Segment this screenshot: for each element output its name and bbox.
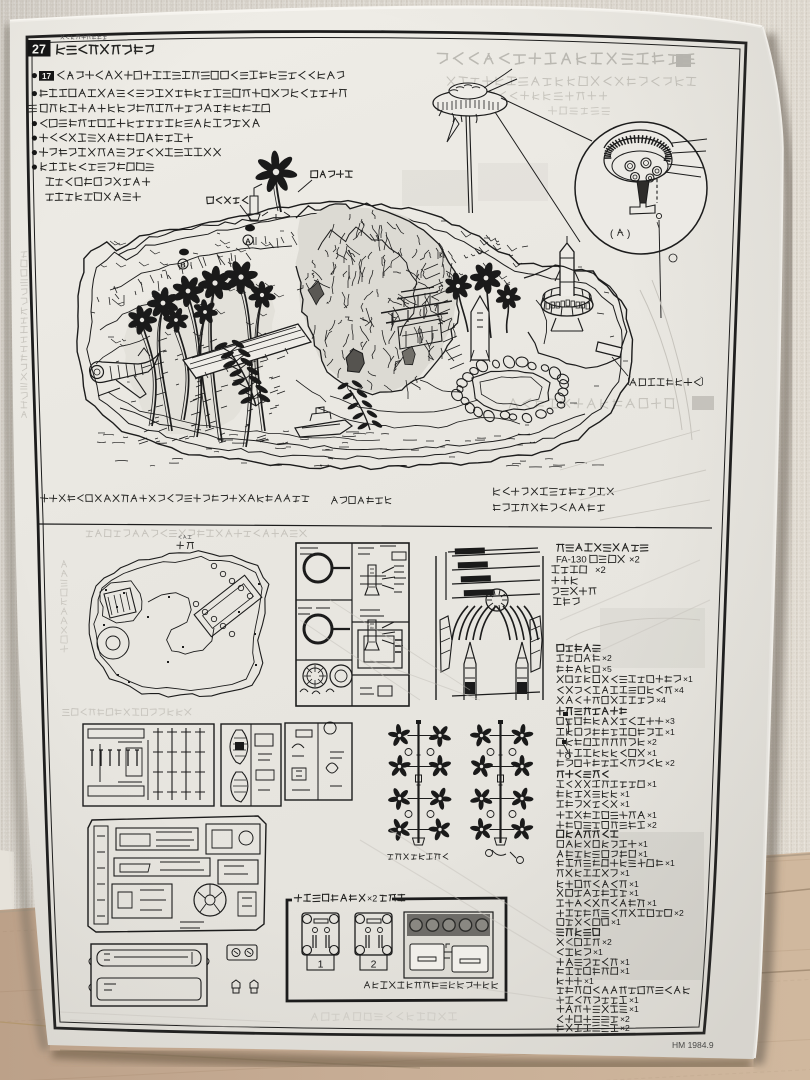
svg-text:×1: ×1 xyxy=(638,849,648,859)
svg-text:×2: ×2 xyxy=(595,565,606,576)
svg-text:×1: ×1 xyxy=(647,898,657,908)
svg-text:×4: ×4 xyxy=(656,695,666,705)
svg-text:×2: ×2 xyxy=(647,820,657,830)
svg-text:HM 1984.9: HM 1984.9 xyxy=(672,1040,714,1050)
svg-text:×1: ×1 xyxy=(593,947,603,957)
svg-text:×1: ×1 xyxy=(683,674,693,684)
svg-text:×1: ×1 xyxy=(584,976,594,986)
svg-text:×2: ×2 xyxy=(367,894,377,904)
svg-text:〔: 〔 xyxy=(621,376,631,388)
svg-text:×1: ×1 xyxy=(620,966,630,976)
svg-text:×1: ×1 xyxy=(638,839,648,849)
svg-text:×1: ×1 xyxy=(611,917,621,927)
svg-text:×3: ×3 xyxy=(665,716,675,726)
svg-text:1: 1 xyxy=(318,959,324,971)
svg-text:×5: ×5 xyxy=(602,664,612,674)
svg-text:×4: ×4 xyxy=(674,685,684,695)
svg-text:×1: ×1 xyxy=(665,727,675,737)
svg-text:×2: ×2 xyxy=(620,1023,630,1033)
svg-text:×2: ×2 xyxy=(665,758,675,768)
svg-text:×1: ×1 xyxy=(629,888,639,898)
svg-text:×2: ×2 xyxy=(647,737,657,747)
svg-text:): ) xyxy=(627,229,630,240)
svg-text:×2: ×2 xyxy=(629,555,640,566)
svg-text:×1: ×1 xyxy=(665,858,675,868)
svg-text:×1: ×1 xyxy=(647,779,657,789)
svg-text:×1: ×1 xyxy=(620,799,630,809)
svg-text:×2: ×2 xyxy=(602,653,612,663)
svg-text:2: 2 xyxy=(371,959,377,971)
svg-text:×1: ×1 xyxy=(629,1004,639,1014)
svg-text:A: A xyxy=(245,236,251,245)
svg-text:×1: ×1 xyxy=(620,868,630,878)
svg-text:×1: ×1 xyxy=(647,748,657,758)
svg-text:〕: 〕 xyxy=(700,376,710,388)
svg-text:27: 27 xyxy=(32,43,46,57)
svg-text:B: B xyxy=(180,260,186,269)
svg-text:×2: ×2 xyxy=(674,908,684,918)
svg-text:×2: ×2 xyxy=(602,937,612,947)
svg-text:FA-130: FA-130 xyxy=(556,555,587,566)
svg-text:×1: ×1 xyxy=(647,810,657,820)
svg-text:17: 17 xyxy=(42,72,52,81)
svg-text:×1: ×1 xyxy=(620,789,630,799)
